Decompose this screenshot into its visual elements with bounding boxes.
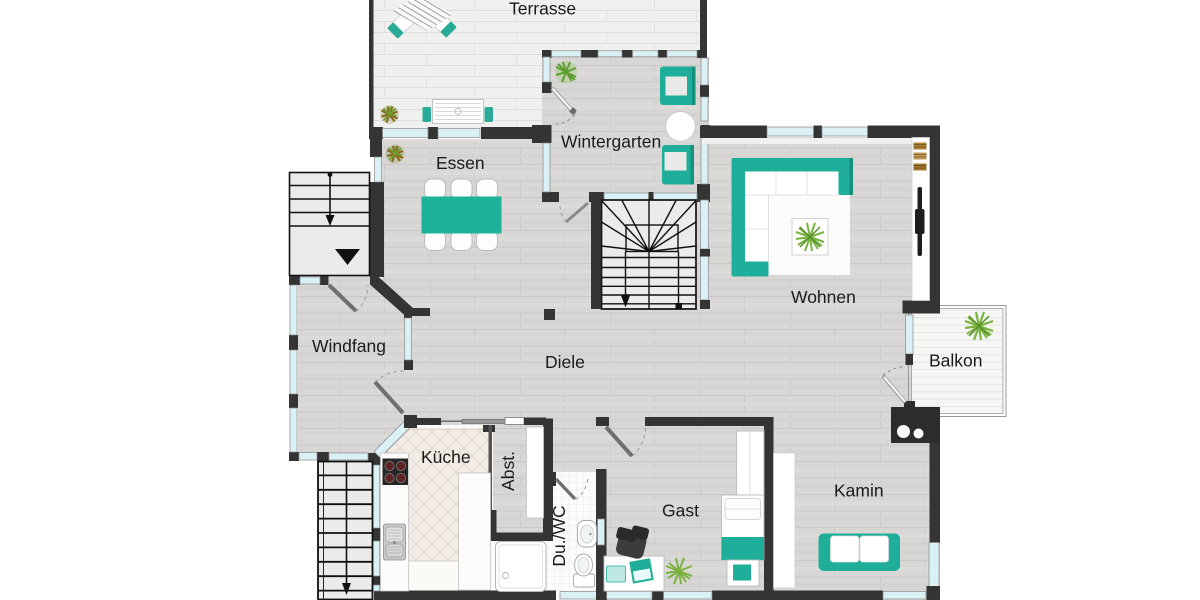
svg-text:Gast: Gast bbox=[662, 501, 699, 521]
svg-text:Wintergarten: Wintergarten bbox=[561, 132, 661, 152]
svg-text:Essen: Essen bbox=[436, 153, 485, 173]
svg-text:Windfang: Windfang bbox=[312, 336, 386, 356]
svg-text:Küche: Küche bbox=[421, 447, 471, 467]
svg-text:Du./WC: Du./WC bbox=[549, 505, 569, 566]
svg-text:Wohnen: Wohnen bbox=[791, 287, 856, 307]
svg-text:Kamin: Kamin bbox=[834, 481, 884, 501]
svg-text:Balkon: Balkon bbox=[929, 351, 983, 371]
svg-text:Terrasse: Terrasse bbox=[509, 0, 576, 19]
svg-text:Diele: Diele bbox=[545, 352, 585, 372]
svg-text:Abst.: Abst. bbox=[498, 451, 518, 491]
